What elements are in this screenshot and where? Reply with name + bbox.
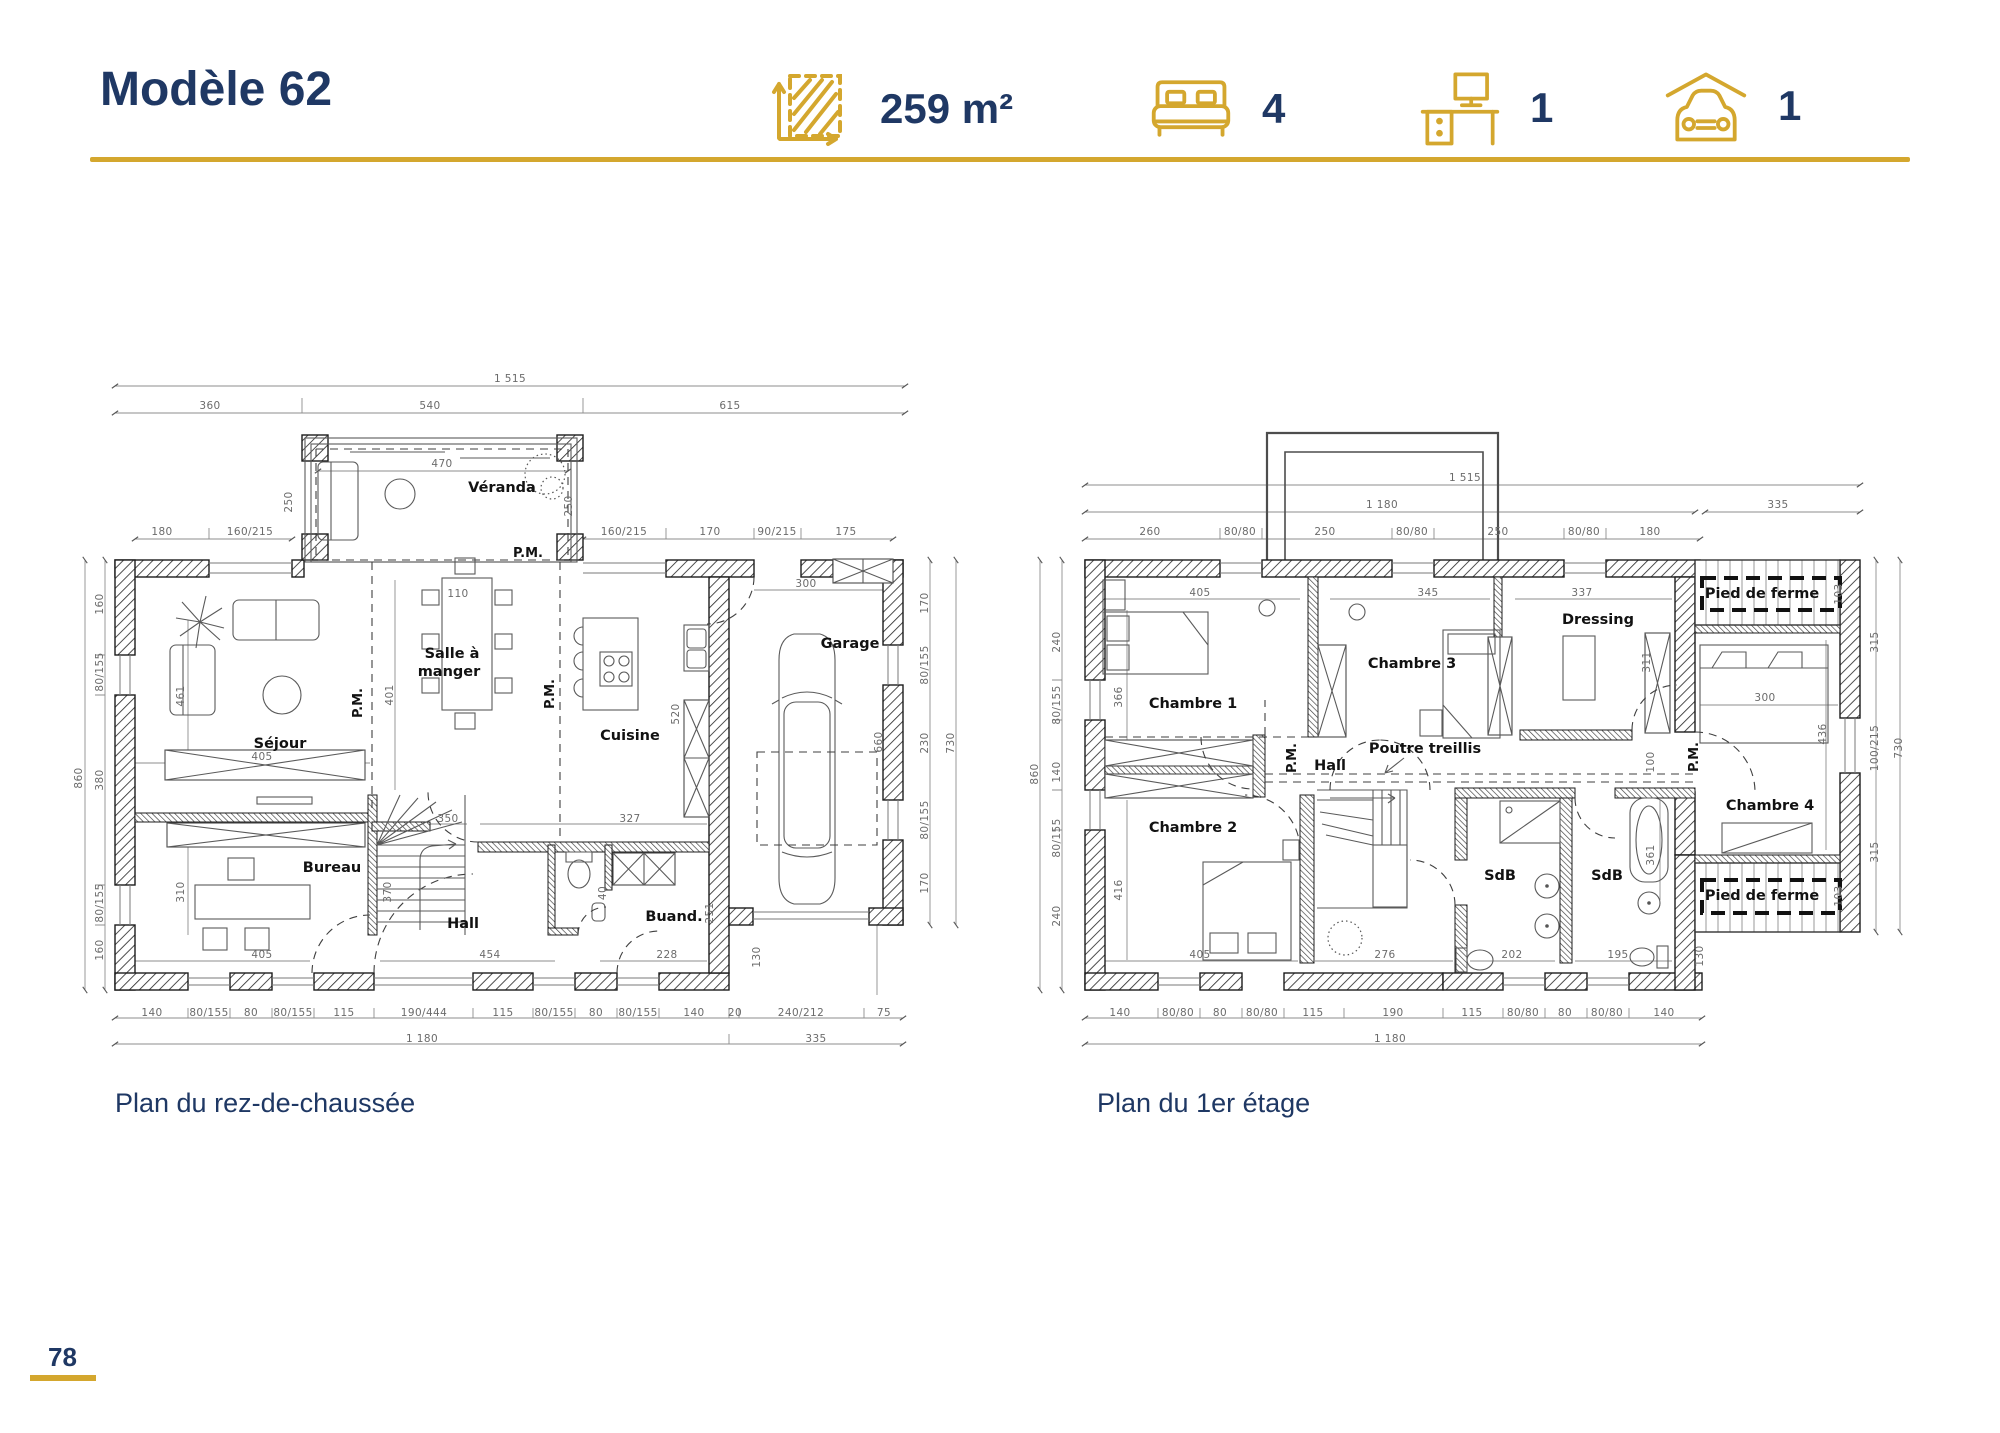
dimension-label: 276 [1374,949,1395,961]
area-icon [770,68,852,150]
page-number: 78 [48,1342,77,1373]
dimension-label: 240 [1051,905,1063,926]
dimension-label: 20 [728,1007,742,1019]
dimension-label: 170 [919,592,931,613]
room-label: Cuisine [600,728,660,744]
dimension-label: 80/155 [534,1007,573,1019]
dimension-label: 100/215 [1869,725,1881,771]
room-label: Bureau [303,860,361,876]
dimension-label: 405 [1189,587,1210,599]
beam-label: P.M. [543,679,558,709]
dimension-label: 80 [244,1007,258,1019]
dimension-label: 80/80 [1591,1007,1623,1019]
dimension-label: 250 [1487,526,1508,538]
dimension-label: 80 [589,1007,603,1019]
dimension-label: 327 [619,813,640,825]
room-label: Buand. [645,909,702,925]
dimension-label: 80/155 [919,800,931,839]
ground-floor-caption: Plan du rez-de-chaussée [115,1088,415,1119]
dimension-label: 361 [1645,844,1657,865]
dimension-label: 80 [1558,1007,1572,1019]
office-value: 1 [1530,84,1553,132]
room-label: Hall [447,916,479,932]
dimension-label: 520 [670,703,682,724]
dimension-label: 160 [94,593,106,614]
dimension-label: 110 [447,588,468,600]
dimension-label: 228 [656,949,677,961]
dimension-label: 416 [1113,879,1125,900]
dimension-label: 615 [719,400,740,412]
first-floor-caption: Plan du 1er étage [1097,1088,1310,1119]
dimension-label: 240/212 [778,1007,824,1019]
desk-icon [1418,70,1502,146]
room-label: Pied de ferme [1705,888,1820,904]
dimension-label: 170 [699,526,720,538]
room-label: Chambre 3 [1368,656,1456,672]
veranda [305,438,577,562]
dimension-label: 250 [1314,526,1335,538]
car-garage-icon [1662,66,1750,146]
dimension-label: 80/155 [94,652,106,691]
beam-label: P.M. [1687,742,1702,772]
room-label: manger [418,664,481,680]
dimension-label: 115 [1302,1007,1323,1019]
dimension-label: 40 [597,886,609,900]
dimension-label: 80/80 [1568,526,1600,538]
beam-label: P.M. [1285,743,1300,773]
dimension-label: 180 [1639,526,1660,538]
ground-floor-plan: VérandaSéjourSalle àmangerCuisineGarageB… [70,360,980,1060]
dimension-label: 436 [1817,723,1829,744]
dimension-label: 401 [384,684,396,705]
room-label: Chambre 2 [1149,820,1237,836]
dimension-label: 170 [919,872,931,893]
dimension-label: 140 [1109,1007,1130,1019]
dimension-label: 350 [437,813,458,825]
dimension-label: 380 [94,769,106,790]
room-label: Poutre treillis [1369,741,1481,757]
first-floor-plan: Chambre 1Chambre 2Chambre 3Chambre 4Dres… [1030,360,1910,1060]
dimension-label: 730 [945,732,957,753]
gold-divider [90,157,1910,162]
dimension-label: 90/215 [757,526,796,538]
dimension-label: 360 [199,400,220,412]
dimension-label: 80/155 [1051,818,1063,857]
room-label: Pied de ferme [1705,586,1820,602]
dimension-label: 80/155 [618,1007,657,1019]
dimension-label: 251 [704,902,716,923]
dimension-label: 366 [1113,686,1125,707]
dimension-label: 80/155 [94,883,106,922]
dimension-label: 405 [1189,949,1210,961]
dimension-label: 140 [1653,1007,1674,1019]
page-number-underline [30,1375,96,1381]
room-label: Hall [1314,758,1346,774]
room-label: Séjour [254,736,308,752]
dimension-label: 1 515 [494,373,526,385]
room-label: Salle à [425,646,480,662]
dimension-label: 103 [1833,885,1845,906]
dimension-label: 190 [1382,1007,1403,1019]
dimension-label: 160 [94,939,106,960]
dimension-label: 335 [805,1033,826,1045]
dimension-label: 310 [175,881,187,902]
dimension-label: 250 [283,491,295,512]
stat-bedrooms: 4 [1148,76,1285,142]
dimension-label: 660 [873,731,885,752]
dimension-label: 337 [1571,587,1592,599]
dimension-label: 240 [1051,631,1063,652]
dimension-label: 140 [141,1007,162,1019]
dimension-label: 1 180 [1374,1033,1406,1045]
dimension-label: 195 [1607,949,1628,961]
dimension-label: 345 [1417,587,1438,599]
dimension-label: 202 [1501,949,1522,961]
dimension-label: 130 [751,946,763,967]
bed-icon [1148,76,1234,142]
dimension-label: 115 [492,1007,513,1019]
dimension-label: 80/80 [1396,526,1428,538]
beam-label: P.M. [351,688,366,718]
room-label: Chambre 1 [1149,696,1237,712]
dimension-label: 730 [1893,737,1905,758]
dimension-label: 160/215 [227,526,273,538]
dimension-label: 300 [1754,692,1775,704]
dimension-label: 80/80 [1224,526,1256,538]
stat-area: 259 m² [770,68,1013,150]
room-label: Véranda [468,480,536,496]
dimension-label: 315 [1869,631,1881,652]
beam-label: P.M. [513,546,543,561]
room-label: SdB [1591,868,1623,884]
dimension-label: 115 [1461,1007,1482,1019]
dimension-label: 540 [419,400,440,412]
dimension-label: 80/80 [1162,1007,1194,1019]
first-stairs [1317,790,1407,908]
ground-labels: VérandaSéjourSalle àmangerCuisineGarageB… [73,373,957,1045]
ground-walls [115,435,903,990]
page-title: Modèle 62 [100,62,332,117]
dimension-label: 405 [251,949,272,961]
bedrooms-value: 4 [1262,85,1285,133]
dimension-label: 115 [333,1007,354,1019]
dimension-label: 311 [1641,651,1653,672]
dimension-label: 80 [1213,1007,1227,1019]
dimension-label: 860 [73,767,85,788]
dimension-label: 230 [919,732,931,753]
dimension-label: 80/80 [1246,1007,1278,1019]
dimension-label: 103 [1833,583,1845,604]
dimension-label: 300 [795,578,816,590]
room-label: Dressing [1562,612,1634,628]
dimension-label: 315 [1869,841,1881,862]
dimension-label: 370 [382,881,394,902]
room-label: Chambre 4 [1726,798,1814,814]
dimension-label: 175 [835,526,856,538]
garage-value: 1 [1778,82,1801,130]
dimension-label: 140 [1051,761,1063,782]
dimension-label: 335 [1767,499,1788,511]
dimension-label: 1 180 [406,1033,438,1045]
dimension-label: 80/155 [273,1007,312,1019]
dimension-label: 461 [175,685,187,706]
dimension-label: 75 [877,1007,891,1019]
dimension-label: 405 [251,751,272,763]
dimension-label: 160/215 [601,526,647,538]
dimension-label: 80/80 [1507,1007,1539,1019]
dimension-label: 190/444 [401,1007,447,1019]
dimension-label: 180 [151,526,172,538]
dimension-label: 260 [1139,526,1160,538]
room-label: SdB [1484,868,1516,884]
dimension-label: 250 [563,495,575,516]
dimension-label: 1 515 [1449,472,1481,484]
stat-garage: 1 [1662,66,1801,146]
dimension-label: 860 [1030,763,1041,784]
dimension-label: 454 [479,949,500,961]
dimension-label: 1 180 [1366,499,1398,511]
stat-office: 1 [1418,70,1553,146]
pied-de-ferme-bands [1695,560,1840,932]
room-label: Garage [821,636,880,652]
dimension-label: 80/155 [1051,685,1063,724]
dimension-label: 470 [431,458,452,470]
dimension-label: 80/155 [189,1007,228,1019]
area-value: 259 m² [880,85,1013,133]
dimension-label: 130 [1694,945,1706,966]
dimension-label: 140 [683,1007,704,1019]
dimension-label: 80/155 [919,645,931,684]
dimension-label: 100 [1645,751,1657,772]
